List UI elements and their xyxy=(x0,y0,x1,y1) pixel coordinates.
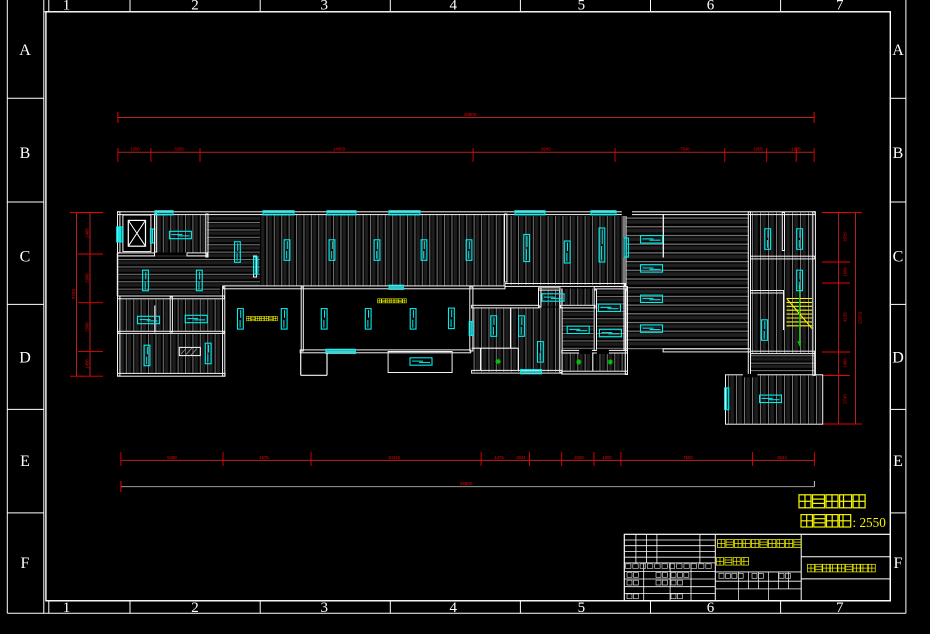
svg-text:1805: 1805 xyxy=(791,147,801,152)
svg-text:9750: 9750 xyxy=(71,288,76,299)
svg-text:13255: 13255 xyxy=(858,311,863,324)
svg-text:7: 7 xyxy=(836,0,844,14)
svg-text:3031: 3031 xyxy=(516,455,526,460)
svg-text:4: 4 xyxy=(450,600,458,616)
svg-text:2: 2 xyxy=(191,0,199,14)
svg-text:C: C xyxy=(20,249,31,266)
svg-text:14000: 14000 xyxy=(333,147,346,152)
svg-text:B: B xyxy=(893,145,904,162)
svg-text:1456: 1456 xyxy=(85,359,90,369)
svg-text:1: 1 xyxy=(63,0,71,14)
svg-text:43800: 43800 xyxy=(464,112,477,117)
svg-text:A: A xyxy=(892,42,904,59)
svg-text:1: 1 xyxy=(63,600,71,616)
svg-text:6: 6 xyxy=(707,0,715,14)
svg-text:1475: 1475 xyxy=(494,455,504,460)
svg-text:5: 5 xyxy=(578,600,586,616)
svg-text:E: E xyxy=(893,453,903,470)
svg-text:1405: 1405 xyxy=(843,358,848,368)
svg-text:F: F xyxy=(894,555,903,572)
svg-text:C: C xyxy=(893,249,904,266)
svg-text:E: E xyxy=(20,453,30,470)
svg-text:4575: 4575 xyxy=(259,455,269,460)
svg-text:5288: 5288 xyxy=(167,455,177,460)
svg-text:2900: 2900 xyxy=(85,273,90,283)
svg-text:5: 5 xyxy=(578,0,586,14)
svg-text:6: 6 xyxy=(707,600,715,616)
svg-text:F: F xyxy=(21,555,30,572)
svg-text:D: D xyxy=(892,350,904,367)
svg-text:2: 2 xyxy=(191,600,199,616)
svg-text:: 2550: : 2550 xyxy=(853,515,887,530)
svg-text:3: 3 xyxy=(320,0,328,14)
svg-text:2935: 2935 xyxy=(843,232,848,242)
svg-text:3250: 3250 xyxy=(174,147,184,152)
svg-text:7500: 7500 xyxy=(683,455,693,460)
svg-text:A: A xyxy=(19,42,31,59)
svg-text:9240: 9240 xyxy=(541,147,551,152)
svg-text:7640: 7640 xyxy=(680,147,690,152)
svg-text:B: B xyxy=(20,145,31,162)
svg-text:D: D xyxy=(19,350,31,367)
svg-text:1000: 1000 xyxy=(602,455,612,460)
svg-text:43800: 43800 xyxy=(460,481,473,486)
svg-text:4135: 4135 xyxy=(843,312,848,322)
svg-text:3: 3 xyxy=(320,600,328,616)
svg-text:4: 4 xyxy=(450,0,458,14)
svg-text:2745: 2745 xyxy=(843,394,848,404)
svg-text:10225: 10225 xyxy=(388,455,401,460)
svg-text:1350: 1350 xyxy=(130,147,140,152)
svg-text:2488: 2488 xyxy=(85,228,90,238)
svg-text:7: 7 xyxy=(836,600,844,616)
svg-text:1950: 1950 xyxy=(843,267,848,277)
svg-text:1905: 1905 xyxy=(753,147,763,152)
svg-text:2000: 2000 xyxy=(574,455,584,460)
svg-text:3044: 3044 xyxy=(777,455,787,460)
svg-text:2906: 2906 xyxy=(85,322,90,332)
